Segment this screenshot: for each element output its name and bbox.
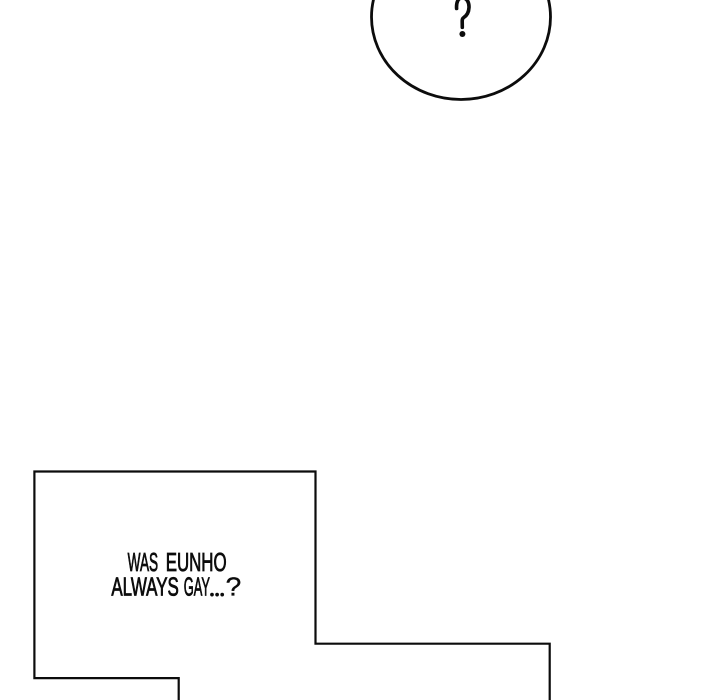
svg-text:GAY: GAY [184,574,210,602]
svg-text:ALWAYS: ALWAYS [111,574,178,602]
svg-text:?: ? [226,574,242,602]
